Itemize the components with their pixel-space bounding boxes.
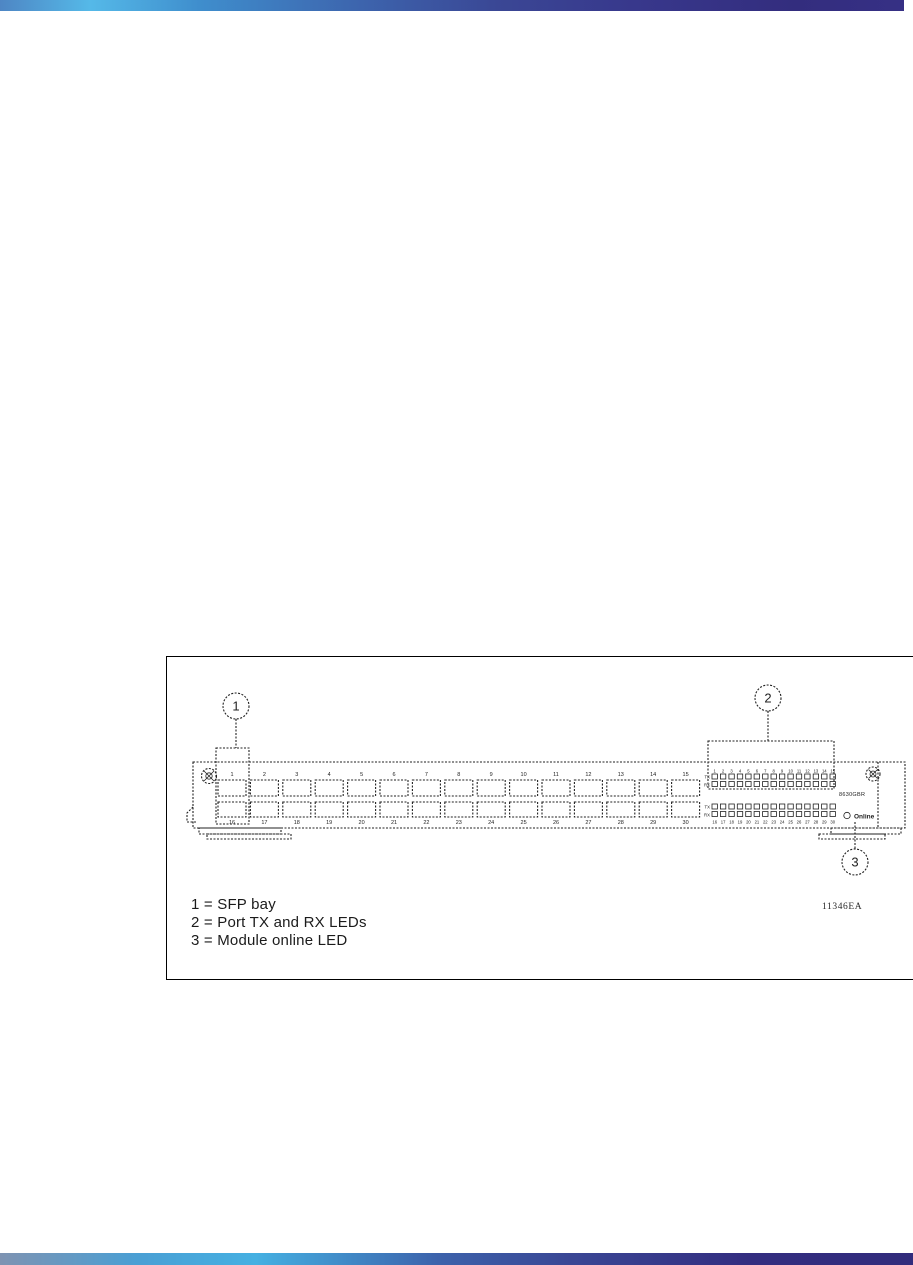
top-gradient-bar — [0, 0, 904, 11]
led-port-number: 15 — [830, 769, 835, 774]
port-number: 10 — [521, 772, 527, 778]
port-number: 15 — [683, 772, 689, 778]
port-led — [737, 774, 742, 779]
led-port-number: 12 — [805, 769, 810, 774]
port-led — [720, 812, 725, 817]
port-led — [746, 812, 751, 817]
sfp-bay — [348, 780, 376, 796]
port-led — [712, 812, 717, 817]
led-port-number: 10 — [788, 769, 793, 774]
port-number: 2 — [263, 772, 266, 778]
port-number: 30 — [683, 820, 689, 826]
port-number: 9 — [490, 772, 493, 778]
sfp-bay — [315, 802, 343, 817]
port-led — [779, 782, 784, 787]
port-led — [771, 782, 776, 787]
sfp-bay — [672, 802, 700, 817]
legend-line: 2 = Port TX and RX LEDs — [191, 914, 367, 932]
led-port-number: 19 — [738, 820, 743, 825]
port-led — [771, 812, 776, 817]
port-led — [822, 774, 827, 779]
sfp-bay — [412, 780, 440, 796]
port-led — [779, 774, 784, 779]
port-led — [796, 774, 801, 779]
port-number: 1 — [230, 772, 233, 778]
port-led — [737, 782, 742, 787]
sfp-bay — [315, 780, 343, 796]
port-number: 7 — [425, 772, 428, 778]
sfp-bay — [607, 780, 635, 796]
led-port-number: 8 — [773, 769, 776, 774]
legend-line: 1 = SFP bay — [191, 896, 367, 914]
port-led — [822, 812, 827, 817]
port-number: 3 — [295, 772, 298, 778]
port-number: 25 — [521, 820, 527, 826]
port-number: 20 — [359, 820, 365, 826]
port-led — [779, 812, 784, 817]
module-name-label: 8630GBR — [839, 792, 865, 798]
port-number: 23 — [456, 820, 462, 826]
led-port-number: 22 — [763, 820, 768, 825]
port-led — [805, 804, 810, 809]
port-led — [805, 782, 810, 787]
port-number: 14 — [650, 772, 656, 778]
port-led — [746, 782, 751, 787]
callout-3-marker: 3 — [842, 822, 868, 875]
port-led — [830, 774, 835, 779]
led-port-number: 20 — [746, 820, 751, 825]
port-led — [737, 804, 742, 809]
port-led — [805, 774, 810, 779]
port-led — [779, 804, 784, 809]
port-led — [788, 782, 793, 787]
bottom-gradient-bar — [0, 1253, 913, 1265]
port-led — [813, 782, 818, 787]
port-led — [712, 774, 717, 779]
port-led — [729, 782, 734, 787]
sfp-bay — [672, 780, 700, 796]
led-port-number: 17 — [721, 820, 726, 825]
led-port-number: 25 — [788, 820, 793, 825]
port-led — [830, 812, 835, 817]
led-port-number: 29 — [822, 820, 827, 825]
led-port-number: 18 — [729, 820, 734, 825]
port-led — [788, 774, 793, 779]
port-number: 6 — [392, 772, 395, 778]
sfp-bay — [218, 802, 246, 817]
sfp-bays-group — [218, 780, 700, 817]
led-port-number: 16 — [712, 820, 717, 825]
led-port-number: 27 — [805, 820, 810, 825]
port-led — [822, 804, 827, 809]
port-led — [763, 782, 768, 787]
led-grid-group: 1162173184195206217228239241025112612271… — [712, 769, 836, 825]
sfp-bay — [574, 780, 602, 796]
rx-row-label: RX — [704, 782, 710, 787]
online-led-label: Online — [854, 814, 875, 821]
tx-row-label: TX — [705, 805, 711, 810]
sfp-bay — [283, 802, 311, 817]
led-port-number: 13 — [814, 769, 819, 774]
sfp-bay — [445, 802, 473, 817]
port-led — [720, 782, 725, 787]
port-number: 17 — [261, 820, 267, 826]
sfp-bay — [283, 780, 311, 796]
port-number: 4 — [328, 772, 331, 778]
sfp-bay — [250, 802, 278, 817]
port-number: 26 — [553, 820, 559, 826]
figure-id-label: 11346EA — [822, 902, 862, 912]
led-port-number: 7 — [764, 769, 767, 774]
sfp-bay — [639, 802, 667, 817]
port-led — [712, 804, 717, 809]
port-led — [822, 782, 827, 787]
port-led — [788, 812, 793, 817]
sfp-bay — [542, 802, 570, 817]
port-number: 12 — [585, 772, 591, 778]
port-led — [763, 812, 768, 817]
port-led — [754, 774, 759, 779]
port-number: 13 — [618, 772, 624, 778]
port-led — [796, 804, 801, 809]
screw-icon — [202, 769, 217, 784]
sfp-bay — [510, 780, 538, 796]
port-number: 21 — [391, 820, 397, 826]
led-port-number: 2 — [722, 769, 725, 774]
tx-row-label: TX — [705, 775, 711, 780]
port-number: 16 — [229, 820, 235, 826]
sfp-bay — [574, 802, 602, 817]
legend-line: 3 = Module online LED — [191, 932, 367, 950]
port-led — [754, 782, 759, 787]
sfp-bay — [445, 780, 473, 796]
port-led — [805, 812, 810, 817]
rx-row-label: RX — [704, 812, 710, 817]
led-port-number: 1 — [714, 769, 717, 774]
port-led — [771, 804, 776, 809]
port-number: 5 — [360, 772, 363, 778]
port-led — [746, 804, 751, 809]
port-number: 28 — [618, 820, 624, 826]
port-led — [830, 804, 835, 809]
led-port-number: 30 — [830, 820, 835, 825]
port-led — [788, 804, 793, 809]
led-port-number: 21 — [755, 820, 760, 825]
callout-2-number: 2 — [764, 691, 771, 706]
sfp-bay — [510, 802, 538, 817]
callout-1-marker: 1 — [216, 693, 249, 824]
led-port-number: 14 — [822, 769, 827, 774]
port-number: 29 — [650, 820, 656, 826]
sfp-bay — [380, 780, 408, 796]
sfp-bay — [607, 802, 635, 817]
port-led — [813, 804, 818, 809]
port-led — [720, 774, 725, 779]
led-port-number: 6 — [756, 769, 759, 774]
led-port-number: 9 — [781, 769, 784, 774]
led-port-number: 5 — [747, 769, 750, 774]
port-led — [796, 782, 801, 787]
port-number: 22 — [423, 820, 429, 826]
port-number: 24 — [488, 820, 494, 826]
port-led — [763, 804, 768, 809]
port-led — [729, 812, 734, 817]
module-online-led: Online — [844, 812, 875, 820]
sfp-bay — [542, 780, 570, 796]
port-led — [813, 812, 818, 817]
port-led — [763, 774, 768, 779]
led-port-number: 4 — [739, 769, 742, 774]
port-led — [754, 804, 759, 809]
sfp-bay — [412, 802, 440, 817]
port-number: 27 — [585, 820, 591, 826]
port-number: 8 — [457, 772, 460, 778]
port-led — [737, 812, 742, 817]
sfp-bay — [639, 780, 667, 796]
port-led — [830, 782, 835, 787]
led-port-number: 11 — [797, 769, 802, 774]
led-port-number: 28 — [814, 820, 819, 825]
port-led — [771, 774, 776, 779]
led-port-number: 23 — [771, 820, 776, 825]
led-port-number: 3 — [730, 769, 733, 774]
sfp-bay — [250, 780, 278, 796]
port-led — [720, 804, 725, 809]
port-number: 18 — [294, 820, 300, 826]
port-led — [754, 812, 759, 817]
led-port-number: 26 — [797, 820, 802, 825]
led-port-number: 24 — [780, 820, 785, 825]
port-number: 19 — [326, 820, 332, 826]
sfp-bay — [477, 802, 505, 817]
callout-1-number: 1 — [232, 699, 239, 714]
sfp-bay — [218, 780, 246, 796]
port-led — [746, 774, 751, 779]
port-led — [712, 782, 717, 787]
sfp-bay — [348, 802, 376, 817]
port-number: 11 — [553, 772, 559, 778]
port-led — [813, 774, 818, 779]
sfp-bay — [380, 802, 408, 817]
callout-3-number: 3 — [851, 855, 858, 870]
sfp-bay — [477, 780, 505, 796]
port-led — [729, 774, 734, 779]
port-led — [796, 812, 801, 817]
figure-box: 1234567891011121314151617181920212223242… — [166, 656, 913, 980]
figure-legend: 1 = SFP bay 2 = Port TX and RX LEDs 3 = … — [191, 896, 367, 950]
port-led — [729, 804, 734, 809]
